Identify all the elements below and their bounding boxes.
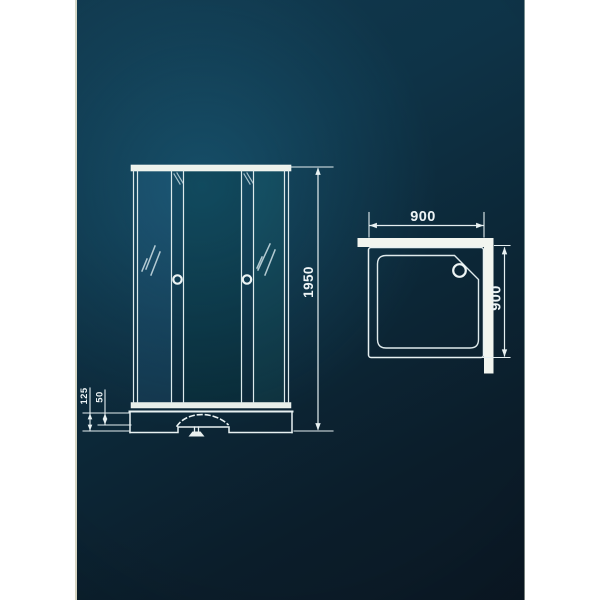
top-plan-view: 900 900	[358, 209, 511, 374]
door-handle-icon	[243, 275, 251, 283]
door-handle-icon	[173, 275, 181, 283]
arrowhead-down	[502, 349, 507, 356]
arrowhead-down	[103, 419, 108, 425]
arrowhead-up	[315, 168, 320, 175]
right-glass-panel	[254, 171, 284, 403]
tray-rim-dim-label: 50	[95, 391, 106, 402]
tray-outline-plan	[369, 248, 484, 358]
center-glass-panel	[184, 171, 241, 403]
arrowhead-up	[103, 413, 108, 419]
glass-panel-fills	[138, 171, 284, 403]
arrowhead-right	[476, 223, 483, 228]
height-dim-label: 1950	[301, 266, 316, 298]
arrowhead-up	[88, 413, 93, 419]
width-dim-label: 900	[410, 209, 435, 225]
dimension-height-1950	[289, 167, 333, 431]
shower-enclosure-technical-drawing: 1950 125 50	[0, 0, 600, 600]
bottom-rail	[131, 403, 291, 409]
screenshot-canvas: 1950 125 50	[0, 0, 600, 600]
tray-apron-bottom	[130, 427, 292, 433]
wall-profile-top	[358, 238, 494, 247]
tray-height-dim-label: 125	[79, 387, 90, 404]
tray-drain-icon	[453, 264, 466, 277]
top-rail	[131, 165, 291, 171]
arrowhead-up	[502, 247, 507, 254]
left-glass-panel	[138, 171, 171, 403]
depth-dim-label: 900	[489, 285, 505, 310]
arrowhead-down	[88, 425, 93, 431]
arrowhead-down	[315, 423, 320, 430]
shower-tray-front	[130, 412, 293, 437]
dimension-tray-heights	[83, 388, 131, 431]
front-elevation-view: 1950 125 50	[79, 165, 333, 437]
drain-dome-dashed	[177, 415, 228, 426]
drain-waste-icon	[189, 427, 205, 437]
tray-basin-rim	[378, 256, 479, 349]
arrowhead-left	[370, 223, 377, 228]
